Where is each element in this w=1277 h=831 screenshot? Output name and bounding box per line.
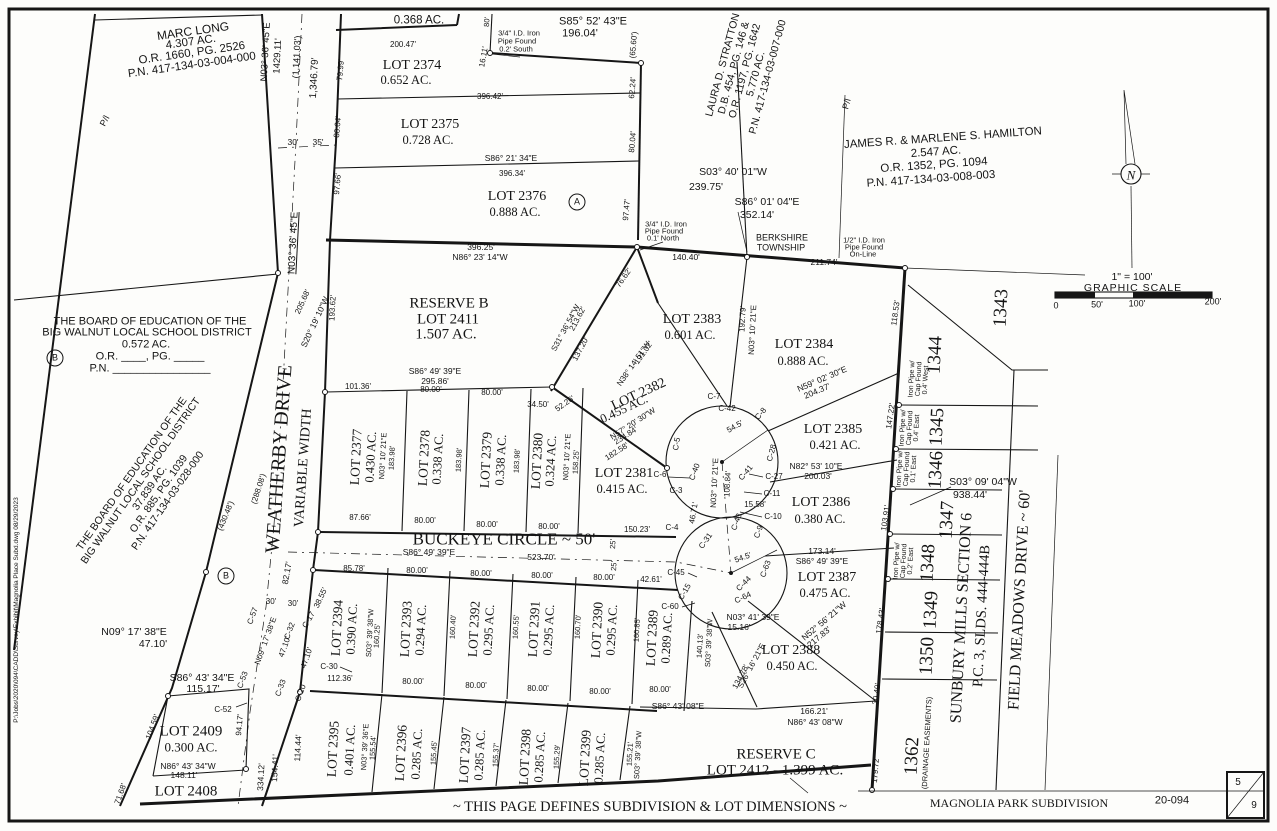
bearing-label: S03° 39' 38"W — [633, 731, 643, 780]
dimension-label: 352.14' — [740, 210, 774, 221]
lot-2387-label: LOT 2387 — [798, 571, 856, 585]
reference-bubble-b: B — [47, 350, 64, 367]
field-meadows-drive-label: FIELD MEADOWS DRIVE ~ 60' — [1006, 490, 1034, 711]
bearing-label: S03° 39' 38"W — [704, 619, 714, 668]
dimension-label: 30.40' — [872, 683, 883, 705]
dimension-label: 108.84' — [723, 471, 732, 497]
dimension-label: 200.47' — [390, 41, 416, 49]
curve-c-3: C-3 — [670, 487, 683, 495]
weatherby-width-label: VARIABLE WIDTH — [293, 408, 315, 528]
curve-c-32: C-32 — [283, 621, 296, 640]
bearing-label: N86° 43' 08"W — [787, 718, 842, 727]
bearing-label: S03° 40' 01"W — [699, 167, 767, 178]
dimension-label: 334.12' — [256, 763, 266, 791]
bearing-label: S86° 21' 34"E — [485, 154, 537, 163]
lot-2384-area: 0.888 AC. — [777, 355, 828, 368]
bearing-label: N09° 17' 38"E — [101, 627, 166, 638]
monument-note: On-Line — [850, 250, 877, 258]
dimension-label: 79.99' — [336, 59, 346, 81]
dimension-label: 160.40' — [449, 615, 458, 640]
bearing-label: N86° 23' 14"W — [452, 253, 507, 262]
dimension-label: 80.00' — [420, 386, 442, 394]
lot-2374-area: 0.652 AC. — [380, 74, 431, 87]
dimension-label: 147.22' — [885, 403, 897, 430]
bearing-label: N03° 10' 21"E — [710, 458, 721, 508]
dimension-label: 47.10' — [139, 639, 167, 650]
scale-ratio: 1" = 100' — [1111, 272, 1152, 283]
bearing-label: N03° 36' 45"E — [287, 212, 300, 275]
monument-note: 0.1' North — [647, 234, 679, 242]
lot-2385-area: 0.421 AC. — [809, 439, 860, 452]
sunbury-lot-1348: 1348 — [918, 544, 939, 583]
dimension-label: 178.43' — [875, 608, 887, 635]
sheet-total: 9 — [1251, 801, 1257, 811]
lot-2408-label: LOT 2408 — [155, 785, 218, 800]
dimension-label: 115.17' — [186, 684, 219, 695]
dimension-label: 295.86' — [421, 377, 449, 386]
sunbury-lot-1362: 1362 — [902, 737, 923, 776]
dimension-label: 160.85' — [633, 618, 642, 643]
lot-2388-area: 0.450 AC. — [766, 660, 817, 673]
dimension-label: 80.00' — [593, 574, 615, 582]
dimension-label: 173.14' — [808, 547, 836, 556]
curve-c-17: C-17 — [301, 610, 317, 629]
bearing-label: S85° 52' 43"E — [559, 17, 627, 28]
lot-2395-label: LOT 2395 — [325, 720, 341, 777]
lot-2388-label: LOT 2388 — [762, 644, 820, 658]
property-line-tag: P/l — [99, 114, 112, 128]
job-number: 20-094 — [1155, 796, 1189, 807]
dimension-label: 80.00' — [465, 682, 487, 690]
bearing-label: N82° 53' 10"E — [790, 462, 843, 471]
sunbury-lot-1349: 1349 — [921, 591, 942, 630]
dimension-label: 35' — [312, 138, 323, 147]
sunbury-lot-1346: 1346 — [926, 451, 947, 490]
curve-c-63: C-63 — [759, 559, 772, 578]
lot-2379-area: 0.338 AC. — [493, 434, 508, 486]
dimension-label: 193.62' — [328, 295, 337, 321]
dimension-label: 30' — [287, 138, 298, 147]
curve-c-9: C-9 — [753, 525, 765, 540]
dimension-label: 140.40' — [672, 253, 700, 262]
lot-2409-label: LOT 2409 — [160, 725, 223, 740]
lot-2412-label: LOT 2412 - 1.399 AC. — [707, 764, 843, 779]
buckeye-circle-label: BUCKEYE CIRCLE ~ 50' — [413, 531, 596, 548]
curve-c-40: C-40 — [688, 462, 701, 481]
bearing-label: S86° 43' 34"E — [170, 673, 235, 684]
dimension-label: 160.55' — [512, 615, 521, 640]
lot-2381-area: 0.415 AC. — [596, 483, 647, 496]
berkshire-township-label: TOWNSHIP — [757, 244, 805, 253]
dimension-label: 114.44' — [293, 734, 303, 761]
lot-2390-area: 0.295 AC. — [604, 604, 619, 656]
dimension-label: 183.98' — [388, 446, 397, 471]
dimension-label: 396.42' — [477, 93, 503, 101]
scale-tick-200: 200' — [1205, 298, 1222, 307]
lot-2396-area: 0.285 AC. — [409, 728, 424, 780]
lot-2376-label: LOT 2376 — [488, 190, 546, 204]
lot-2384-label: LOT 2384 — [775, 338, 833, 352]
dimension-label: 192.79' — [738, 306, 747, 332]
lot-2391-area: 0.295 AC. — [541, 604, 556, 656]
lot-2385-label: LOT 2385 — [804, 423, 862, 437]
dimension-label: 137.20' — [571, 336, 590, 363]
lot-2389-area: 0.289 AC. — [659, 612, 674, 664]
dimension-label: 211.74' — [811, 258, 838, 267]
lot-2375-area: 0.728 AC. — [402, 134, 453, 147]
dimension-label: 80.00' — [406, 567, 428, 575]
dimension-label: 938.44' — [953, 490, 987, 501]
dimension-label: 80.00' — [402, 678, 424, 686]
lot-2376-area: 0.888 AC. — [489, 206, 540, 219]
lot-area-label: 0.368 AC. — [394, 15, 445, 27]
scale-caption: GRAPHIC SCALE — [1084, 283, 1182, 294]
lot-2381-label: LOT 2381 — [595, 467, 653, 481]
curve-c-4: C-4 — [666, 524, 679, 532]
monument-note: 0.1' East — [910, 455, 918, 482]
curve-c-45: C-45 — [667, 569, 684, 577]
lot-2393-area: 0.294 AC. — [413, 604, 428, 656]
dimension-label: 85.78' — [343, 565, 365, 573]
curve-c-42: C-42 — [718, 405, 735, 413]
dimension-label: 155.37' — [492, 743, 501, 768]
lot-2394-area: 0.390 AC. — [344, 603, 359, 655]
dimension-label: 160.25' — [373, 624, 382, 649]
bearing-label: S86° 43' 08"E — [652, 702, 704, 711]
dimension-label: 54.5' — [726, 419, 745, 434]
dimension-label: 183.98' — [513, 449, 522, 474]
lot-2396-label: LOT 2396 — [393, 724, 409, 781]
dimension-label: 52.26' — [554, 395, 576, 414]
easement-note: (DRAINAGE EASEMENTS) — [921, 697, 933, 790]
curve-c-64: C-64 — [733, 591, 752, 606]
scale-tick-0: 0 — [1053, 302, 1058, 311]
dimension-label: 179.72' — [871, 757, 881, 784]
lot-2392-area: 0.295 AC. — [481, 604, 496, 656]
bearing-label: N09° 17' 38"E — [254, 616, 279, 666]
dimension-label: 182.58' — [604, 442, 630, 463]
curve-c-57: C-57 — [246, 606, 259, 625]
subdivision-title: MAGNOLIA PARK SUBDIVISION — [930, 797, 1108, 809]
dimension-label: (65.60') — [629, 31, 639, 58]
dimension-label: 80.00' — [589, 688, 611, 696]
reference-bubble-b: B — [218, 568, 235, 585]
dimension-label: 239.75' — [689, 182, 723, 193]
dimension-label: 205.68' — [294, 289, 312, 316]
reserve-c-label: RESERVE C — [736, 748, 815, 763]
curve-c-6: C-6 — [654, 471, 667, 479]
dimension-label: 87.66' — [349, 514, 371, 522]
owner-school-district: BIG WALNUT LOCAL SCHOOL DISTRICT — [42, 328, 251, 339]
dimension-label: 80.04' — [628, 131, 638, 153]
lot-2395-area: 0.401 AC. — [342, 724, 357, 776]
dimension-label: 155.29' — [553, 745, 562, 770]
dimension-label: (430.48') — [216, 500, 235, 532]
dimension-label: 94.17' — [235, 714, 245, 736]
scale-tick-50: 50' — [1091, 301, 1103, 310]
file-path-note: P:\Jobs\2020\094\CADD\Survey\Exhibit\Mag… — [14, 497, 21, 722]
curve-c-31: C-31 — [698, 532, 715, 551]
dimension-label: 71.68' — [114, 783, 129, 806]
dimension-label: 80.00' — [531, 572, 553, 580]
dimension-label: 15.58' — [744, 501, 766, 509]
berkshire-township-label: BERKSHIRE — [756, 234, 808, 243]
dimension-label: 523.70' — [527, 553, 555, 562]
reserve-b-label: RESERVE B — [409, 297, 488, 312]
dimension-label: 154.41' — [270, 754, 280, 782]
dimension-label: 80.04' — [333, 116, 343, 138]
north-arrow-letter: N — [1127, 169, 1136, 182]
dimension-label: 80.00' — [481, 389, 503, 397]
dimension-label: 150.23' — [624, 526, 650, 534]
curve-c-44: C-44 — [735, 575, 753, 593]
dimension-label: 25' — [609, 539, 617, 549]
bearing-label: N03° 10' 21"E — [748, 305, 759, 355]
dimension-label: 54.5' — [734, 551, 753, 564]
bearing-label: S86° 49' 39"E — [403, 548, 455, 557]
curve-c-10: C-10 — [764, 513, 781, 521]
dimension-label: 166.21' — [800, 707, 828, 716]
bearing-label: N03° 41' 39"E — [727, 613, 780, 622]
dimension-label: 112.36' — [327, 675, 352, 683]
dimension-label: 396.34' — [499, 170, 525, 178]
lot-2386-label: LOT 2386 — [792, 496, 850, 510]
dimension-label: 34.50' — [527, 401, 549, 409]
dimension-label: 47.10' — [300, 647, 315, 670]
dimension-label: 30' — [288, 600, 298, 608]
lot-2409-area: 0.300 AC. — [164, 741, 217, 754]
dimension-label: 62.24' — [628, 77, 638, 99]
dimension-label: 103.91' — [880, 505, 892, 532]
curve-c-52: C-52 — [214, 706, 231, 714]
monument-note: 0.4' West — [922, 365, 931, 394]
dimension-label: 1,346.79' — [309, 57, 321, 98]
lot-2398-area: 0.285 AC. — [532, 731, 547, 783]
dimension-label: 148.11' — [171, 771, 198, 780]
lot-2387-area: 0.475 AC. — [799, 587, 850, 600]
dimension-label: 155.45' — [430, 741, 439, 766]
footer-note: ~ THIS PAGE DEFINES SUBDIVISION & LOT DI… — [453, 800, 847, 815]
curve-c-41: C-41 — [737, 464, 754, 482]
curve-c-30: C-30 — [320, 663, 337, 671]
dimension-label: (1,141.03') — [291, 35, 302, 78]
curve-c-43: C-43 — [730, 512, 743, 531]
lot-2374-label: LOT 2374 — [383, 59, 441, 73]
dimension-label: 82.17' — [281, 561, 293, 585]
lot-2375-label: LOT 2375 — [401, 118, 459, 132]
lot-2399-area: 0.285 AC. — [592, 732, 607, 784]
dimension-label: 101.36' — [345, 383, 371, 391]
lot-2380-area: 0.324 AC. — [543, 435, 558, 487]
dimension-label: 160.70' — [574, 615, 583, 640]
dimension-label: 16.11' — [478, 46, 490, 68]
dimension-label: 158.25' — [572, 450, 581, 475]
dimension-label: 1429.11' — [272, 38, 283, 74]
lot-2383-area: 0.601 AC. — [664, 329, 715, 342]
lot-2411-area: 1.507 AC. — [415, 328, 476, 343]
owner-school-district-parcel: P.N. ________________ — [90, 364, 211, 375]
monument-note: 0.2' South — [499, 45, 533, 53]
lot-2383-label: LOT 2383 — [663, 313, 721, 327]
dimension-label: 80.00' — [470, 570, 492, 578]
curve-c-7: C-7 — [708, 393, 721, 401]
curve-c-5: C-5 — [672, 437, 682, 451]
reference-bubble-a: A — [569, 194, 586, 211]
lot-2397-area: 0.285 AC. — [472, 729, 487, 781]
dimension-label: 15.16' — [728, 623, 751, 632]
sunbury-lot-1347: 1347 — [937, 501, 958, 540]
curve-c-28: C-28 — [766, 444, 778, 463]
dimension-label: 118.53' — [890, 300, 901, 326]
dimension-label: 42.61' — [640, 576, 662, 584]
owner-school-district-record: O.R. ____, PG. _____ — [96, 352, 205, 363]
plat-labels: MARC LONG4.307 AC.O.R. 1660, PG. 2526P.N… — [0, 0, 1277, 831]
sunbury-lot-1350: 1350 — [917, 637, 938, 676]
dimension-label: 46.71' — [688, 502, 700, 525]
curve-c-53: C-53 — [236, 670, 249, 689]
dimension-label: 25' — [610, 561, 618, 571]
sunbury-mills-label: SUNBURY MILLS SECTION 6 — [949, 512, 976, 723]
dimension-label: 76.62' — [615, 267, 634, 289]
sunbury-lot-1345: 1345 — [927, 408, 948, 447]
scale-tick-100: 100' — [1129, 300, 1146, 309]
lot-2386-area: 0.380 AC. — [794, 513, 845, 526]
dimension-label: 396.25' — [467, 243, 495, 252]
dimension-label: 80.00' — [649, 686, 671, 694]
curve-c-11: C-11 — [764, 490, 781, 498]
dimension-label: 38.55' — [313, 587, 329, 610]
bearing-label: S86° 49' 39"E — [796, 557, 848, 566]
weatherby-drive-label: WEATHERBY DRIVE — [262, 364, 295, 554]
monument-note: 0.2' East — [907, 547, 915, 574]
curve-c-27: C-27 — [765, 473, 782, 481]
dimension-label: 80' — [483, 17, 491, 27]
curve-c-33: C-33 — [274, 678, 287, 697]
monument-note: 0.4' East — [913, 414, 921, 441]
curve-c-20: C-20 — [294, 683, 307, 702]
sheet-number: 5 — [1235, 778, 1241, 788]
curve-c-15: C-15 — [677, 582, 693, 601]
lot-2411-label: LOT 2411 — [417, 313, 479, 328]
bearing-label: S86° 01' 04"E — [735, 197, 800, 208]
dimension-label: 80.00' — [527, 685, 549, 693]
dimension-label: 155.54' — [369, 736, 378, 761]
dimension-label: 80.00' — [414, 517, 436, 525]
lot-2378-area: 0.338 AC. — [430, 433, 445, 485]
plat-sheet: MARC LONG4.307 AC.O.R. 1660, PG. 2526P.N… — [0, 0, 1277, 831]
curve-c-60: C-60 — [661, 603, 678, 611]
owner-school-district-acreage: 0.572 AC. — [122, 340, 170, 351]
curve-c-8: C-8 — [754, 406, 768, 421]
dimension-label: 183.98' — [455, 448, 464, 473]
dimension-label: 97.66' — [333, 173, 343, 195]
bearing-label: S86° 49' 39"E — [409, 367, 461, 376]
dimension-label: 80.00' — [476, 521, 498, 529]
sunbury-lot-1343: 1343 — [991, 289, 1012, 328]
property-line-tag: P/l — [841, 98, 852, 110]
dimension-label: 97.47' — [622, 199, 632, 221]
dimension-label: 30' — [266, 598, 276, 606]
bearing-label: N38° 14' 51"W — [616, 340, 652, 387]
sunbury-mills-record: P.C. 3, SLDS. 444-444B — [971, 545, 993, 688]
bearing-label: S03° 09' 04"W — [949, 477, 1017, 488]
dimension-label: 196.04' — [562, 29, 598, 40]
dimension-label: 200.03' — [804, 472, 832, 481]
